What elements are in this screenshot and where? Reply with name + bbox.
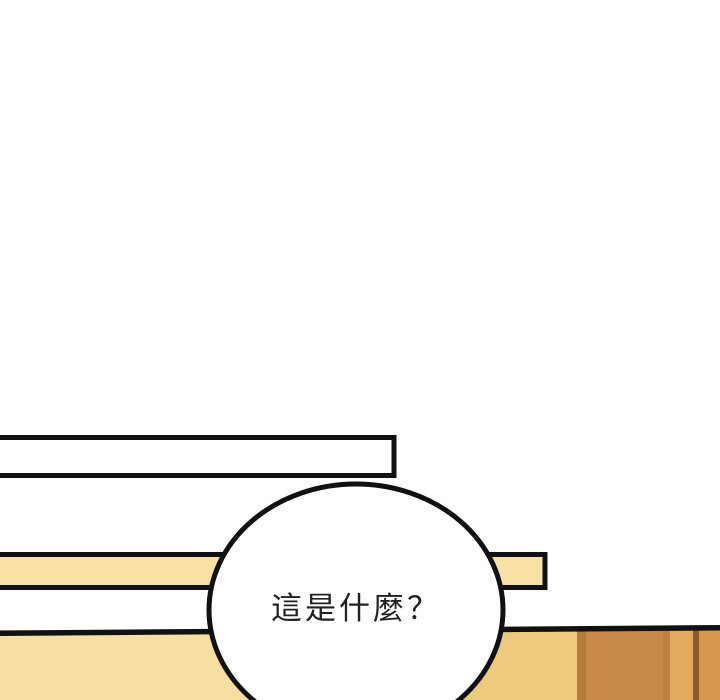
comic-panel: 這是什麼？ xyxy=(0,0,720,700)
speech-bubble-text: 這是什麼？ xyxy=(271,591,441,627)
floor-plank-seam xyxy=(693,628,699,700)
sign-bar xyxy=(0,438,394,476)
floor-plank-seam xyxy=(577,628,586,700)
panel-canvas: 這是什麼？ xyxy=(0,0,720,700)
floor-plank-medium xyxy=(699,628,720,700)
floor-plank-seam xyxy=(663,628,670,700)
floor-plank-orange xyxy=(586,628,663,700)
floor-plank-amber xyxy=(670,628,693,700)
